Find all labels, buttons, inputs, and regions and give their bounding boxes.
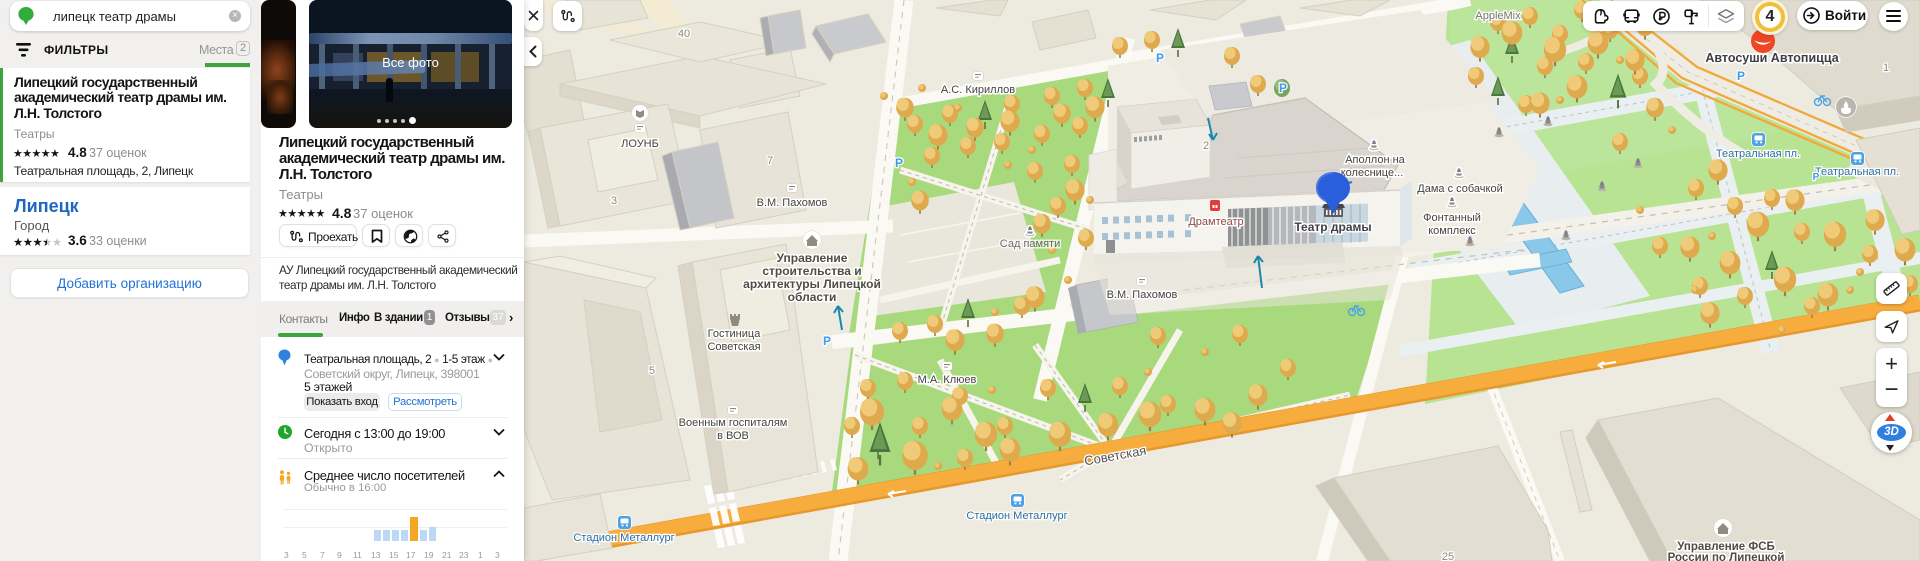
svg-text:Театральная пл.: Театральная пл. — [1716, 148, 1800, 160]
svg-text:3: 3 — [611, 195, 617, 207]
svg-text:Гостиница: Гостиница — [708, 328, 762, 340]
svg-text:России по Липецкой: России по Липецкой — [1668, 552, 1785, 561]
svg-text:Фонтанный: Фонтанный — [1423, 212, 1481, 224]
svg-text:AppleMix: AppleMix — [1475, 10, 1521, 22]
svg-text:1: 1 — [1883, 62, 1889, 74]
svg-text:Аполлон на: Аполлон на — [1345, 154, 1405, 166]
svg-text:М.А. Клюев: М.А. Клюев — [918, 374, 977, 386]
svg-text:P: P — [823, 334, 831, 348]
svg-text:в ВОВ: в ВОВ — [717, 430, 749, 442]
svg-text:P: P — [1279, 81, 1287, 95]
svg-text:Стадион Металлург: Стадион Металлург — [966, 510, 1067, 522]
svg-text:Драмтеатр: Драмтеатр — [1188, 216, 1243, 228]
svg-text:Театральная пл.: Театральная пл. — [1815, 166, 1899, 178]
svg-text:40: 40 — [678, 28, 690, 40]
svg-text:области: области — [788, 290, 837, 304]
svg-text:P: P — [1156, 51, 1164, 65]
svg-text:колеснице...: колеснице... — [1341, 167, 1404, 179]
svg-text:5: 5 — [649, 365, 655, 377]
svg-text:архитектуры Липецкой: архитектуры Липецкой — [743, 277, 881, 291]
svg-text:В.М. Пахомов: В.М. Пахомов — [757, 197, 828, 209]
svg-text:7: 7 — [767, 155, 773, 167]
svg-text:ЛОУНБ: ЛОУНБ — [621, 138, 659, 150]
svg-text:комплекс: комплекс — [1428, 225, 1476, 237]
svg-text:P: P — [1813, 172, 1820, 183]
svg-text:Стадион Металлург: Стадион Металлург — [573, 532, 674, 544]
svg-text:Театр драмы: Театр драмы — [1294, 220, 1371, 234]
svg-text:Сад памяти: Сад памяти — [1000, 238, 1060, 250]
svg-text:2: 2 — [1203, 140, 1209, 152]
svg-text:P: P — [1737, 69, 1745, 83]
svg-text:Дама с собачкой: Дама с собачкой — [1417, 183, 1502, 195]
svg-text:Автосуши Автопицца: Автосуши Автопицца — [1705, 51, 1839, 65]
svg-text:Управление: Управление — [777, 251, 848, 265]
svg-text:Советская: Советская — [707, 341, 760, 353]
svg-text:25: 25 — [1442, 551, 1454, 561]
svg-text:А.С. Кириллов: А.С. Кириллов — [941, 84, 1015, 96]
svg-text:В.М. Пахомов: В.М. Пахомов — [1107, 289, 1178, 301]
svg-text:Военным госпиталям: Военным госпиталям — [679, 417, 788, 429]
svg-text:P: P — [895, 156, 903, 170]
svg-text:строительства и: строительства и — [762, 264, 861, 278]
